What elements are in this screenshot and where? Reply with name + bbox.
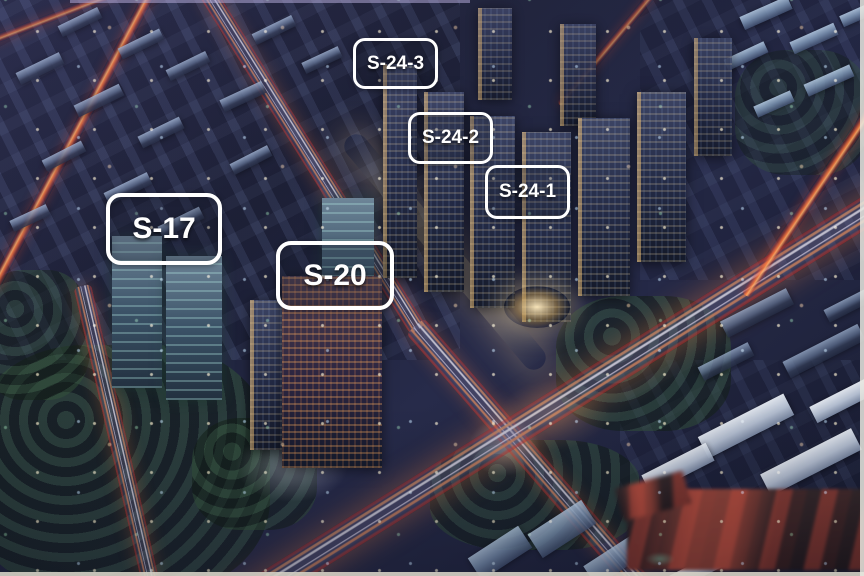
image-edge-right (860, 0, 864, 576)
plot-label-s24-1: S-24-1 (485, 165, 570, 219)
plot-label-s17: S-17 (106, 193, 222, 265)
image-edge-bottom (0, 572, 864, 576)
plot-label-s20: S-20 (276, 241, 394, 310)
image-edge-top (70, 0, 470, 3)
plot-label-s24-2: S-24-2 (408, 112, 493, 164)
aerial-night-render: S-24-3 S-24-2 S-24-1 S-17 S-20 (0, 0, 864, 576)
plot-label-s24-3: S-24-3 (353, 38, 438, 89)
